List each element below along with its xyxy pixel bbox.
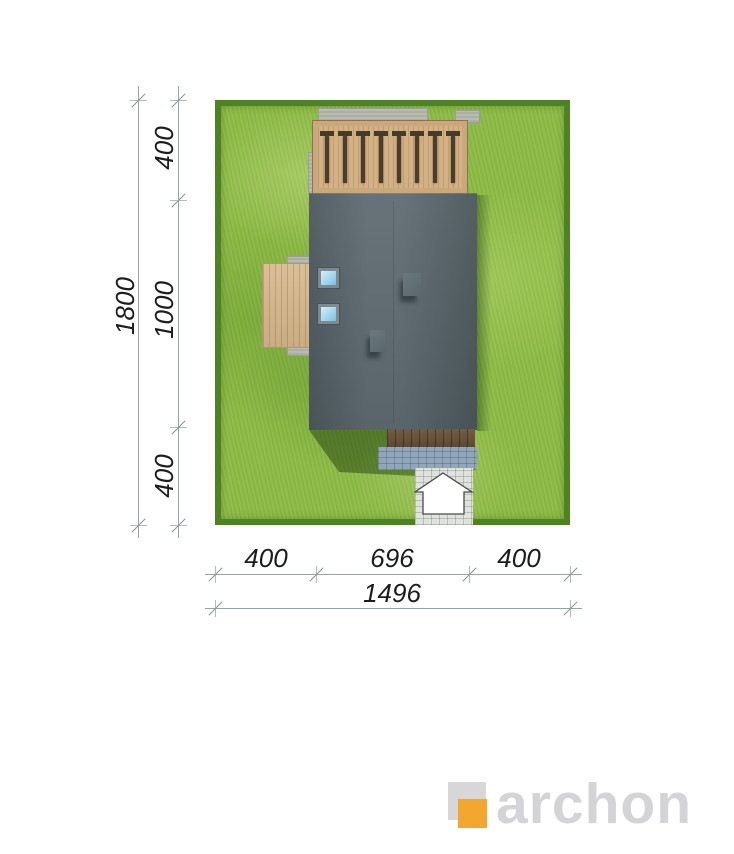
dim-tick xyxy=(570,574,571,575)
skylight-glass xyxy=(321,307,336,321)
pergola-beam xyxy=(397,136,401,183)
dim-tick xyxy=(215,608,216,609)
dim-tick xyxy=(178,427,179,428)
pergola-beam xyxy=(325,136,329,183)
skylight-window xyxy=(317,303,340,325)
house-roof xyxy=(309,193,477,430)
dim-label-bottom-400-left: 400 xyxy=(206,544,326,572)
dim-tick xyxy=(178,525,179,526)
dim-tick xyxy=(215,574,216,575)
dim-label-left-400-top: 400 xyxy=(150,88,178,208)
grass-plot xyxy=(215,100,570,525)
skylight-glass xyxy=(321,271,336,285)
dim-label-bottom-total: 1496 xyxy=(332,579,452,607)
dim-tick xyxy=(178,100,179,101)
entrance-deck xyxy=(387,429,475,448)
dim-tick xyxy=(138,100,139,101)
pergola-beam xyxy=(361,136,365,183)
logo-mark-orange-square xyxy=(458,799,487,828)
dim-label-bottom-696: 696 xyxy=(332,544,452,572)
dim-line-bottom-total xyxy=(205,608,582,609)
dim-tick xyxy=(316,574,317,575)
dim-label-left-1000: 1000 xyxy=(150,250,178,370)
pergola-beam xyxy=(379,136,383,183)
pergola xyxy=(313,121,467,193)
pergola-beam xyxy=(433,136,437,183)
dim-label-bottom-400-right: 400 xyxy=(459,544,579,572)
pergola-beam xyxy=(415,136,419,183)
dim-tick xyxy=(178,200,179,201)
skylight-window xyxy=(317,267,340,289)
dim-tick xyxy=(138,525,139,526)
chimney xyxy=(370,330,385,352)
pergola-beam xyxy=(451,136,455,183)
entrance-arrow-icon xyxy=(414,470,474,516)
roof-ridge xyxy=(393,201,394,423)
dim-label-left-total: 1800 xyxy=(111,246,139,366)
terrace-deck xyxy=(262,263,312,348)
site-plan-canvas: 400 1000 400 1800 400 696 400 1496 xyxy=(0,0,734,854)
logo-text: archon xyxy=(496,776,692,833)
chimney xyxy=(403,273,421,296)
dim-label-left-400-bot: 400 xyxy=(150,416,178,536)
concrete-pad xyxy=(318,108,428,122)
pergola-beam xyxy=(343,136,347,183)
paved-terrace xyxy=(378,447,477,470)
building-shadow xyxy=(477,195,491,431)
dim-tick xyxy=(469,574,470,575)
dim-line-bottom-segments xyxy=(205,574,582,575)
dim-tick xyxy=(570,608,571,609)
